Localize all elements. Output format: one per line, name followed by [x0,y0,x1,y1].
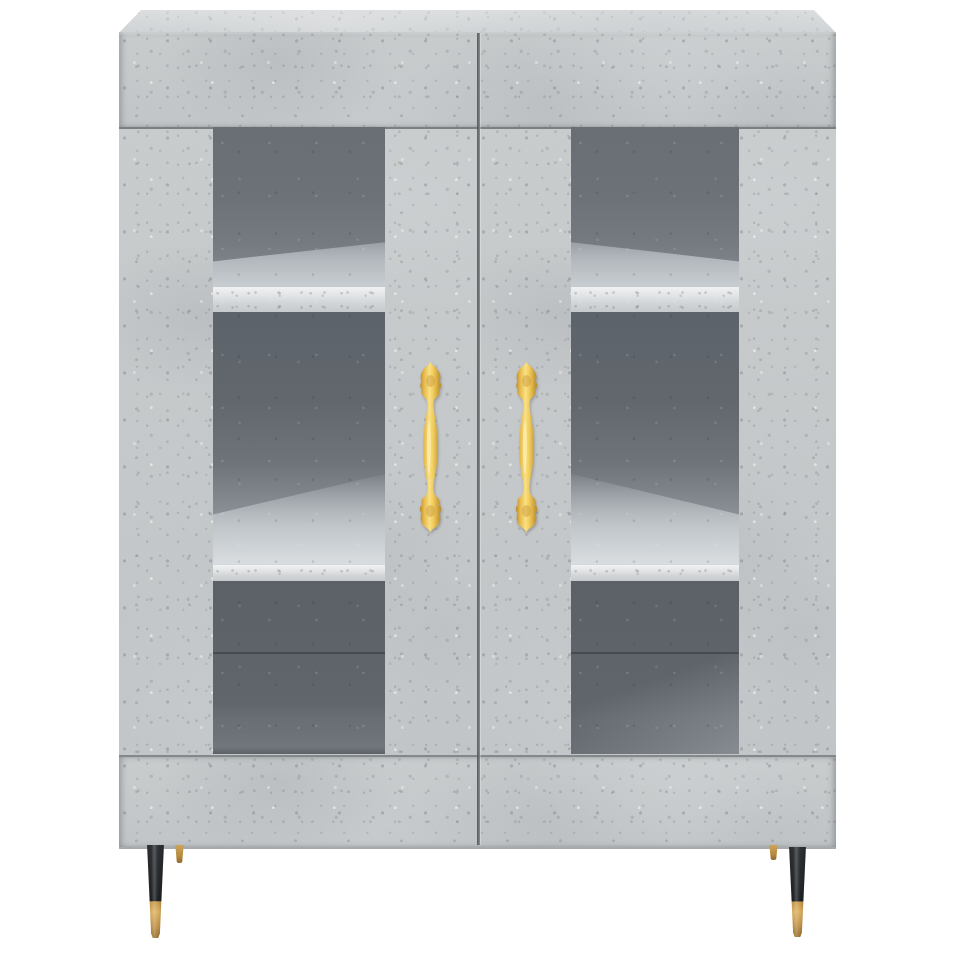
interior-back-seam [571,652,739,654]
door-gap-seam [477,33,480,845]
glass-compartment-top [571,127,739,287]
glass-compartment-bottom [571,581,739,754]
left-door-glass-panel [213,127,385,754]
rear-left-leg [174,845,185,863]
product-photo-stage [0,0,955,955]
glass-shelf-upper [571,287,739,314]
left-door-handle [418,361,443,533]
right-door-glass-panel [571,127,739,754]
front-left-leg [145,845,166,938]
glass-compartment-top [213,127,385,287]
right-door-handle [514,361,539,533]
interior-back-seam [213,652,385,654]
glass-compartment-bottom [213,581,385,754]
glass-compartment-middle [213,312,385,565]
rear-right-leg [768,845,779,860]
front-right-leg [787,847,808,937]
glass-compartment-middle [571,312,739,565]
glass-shelf-upper [213,287,385,314]
cabinet-top-surface [119,10,836,33]
